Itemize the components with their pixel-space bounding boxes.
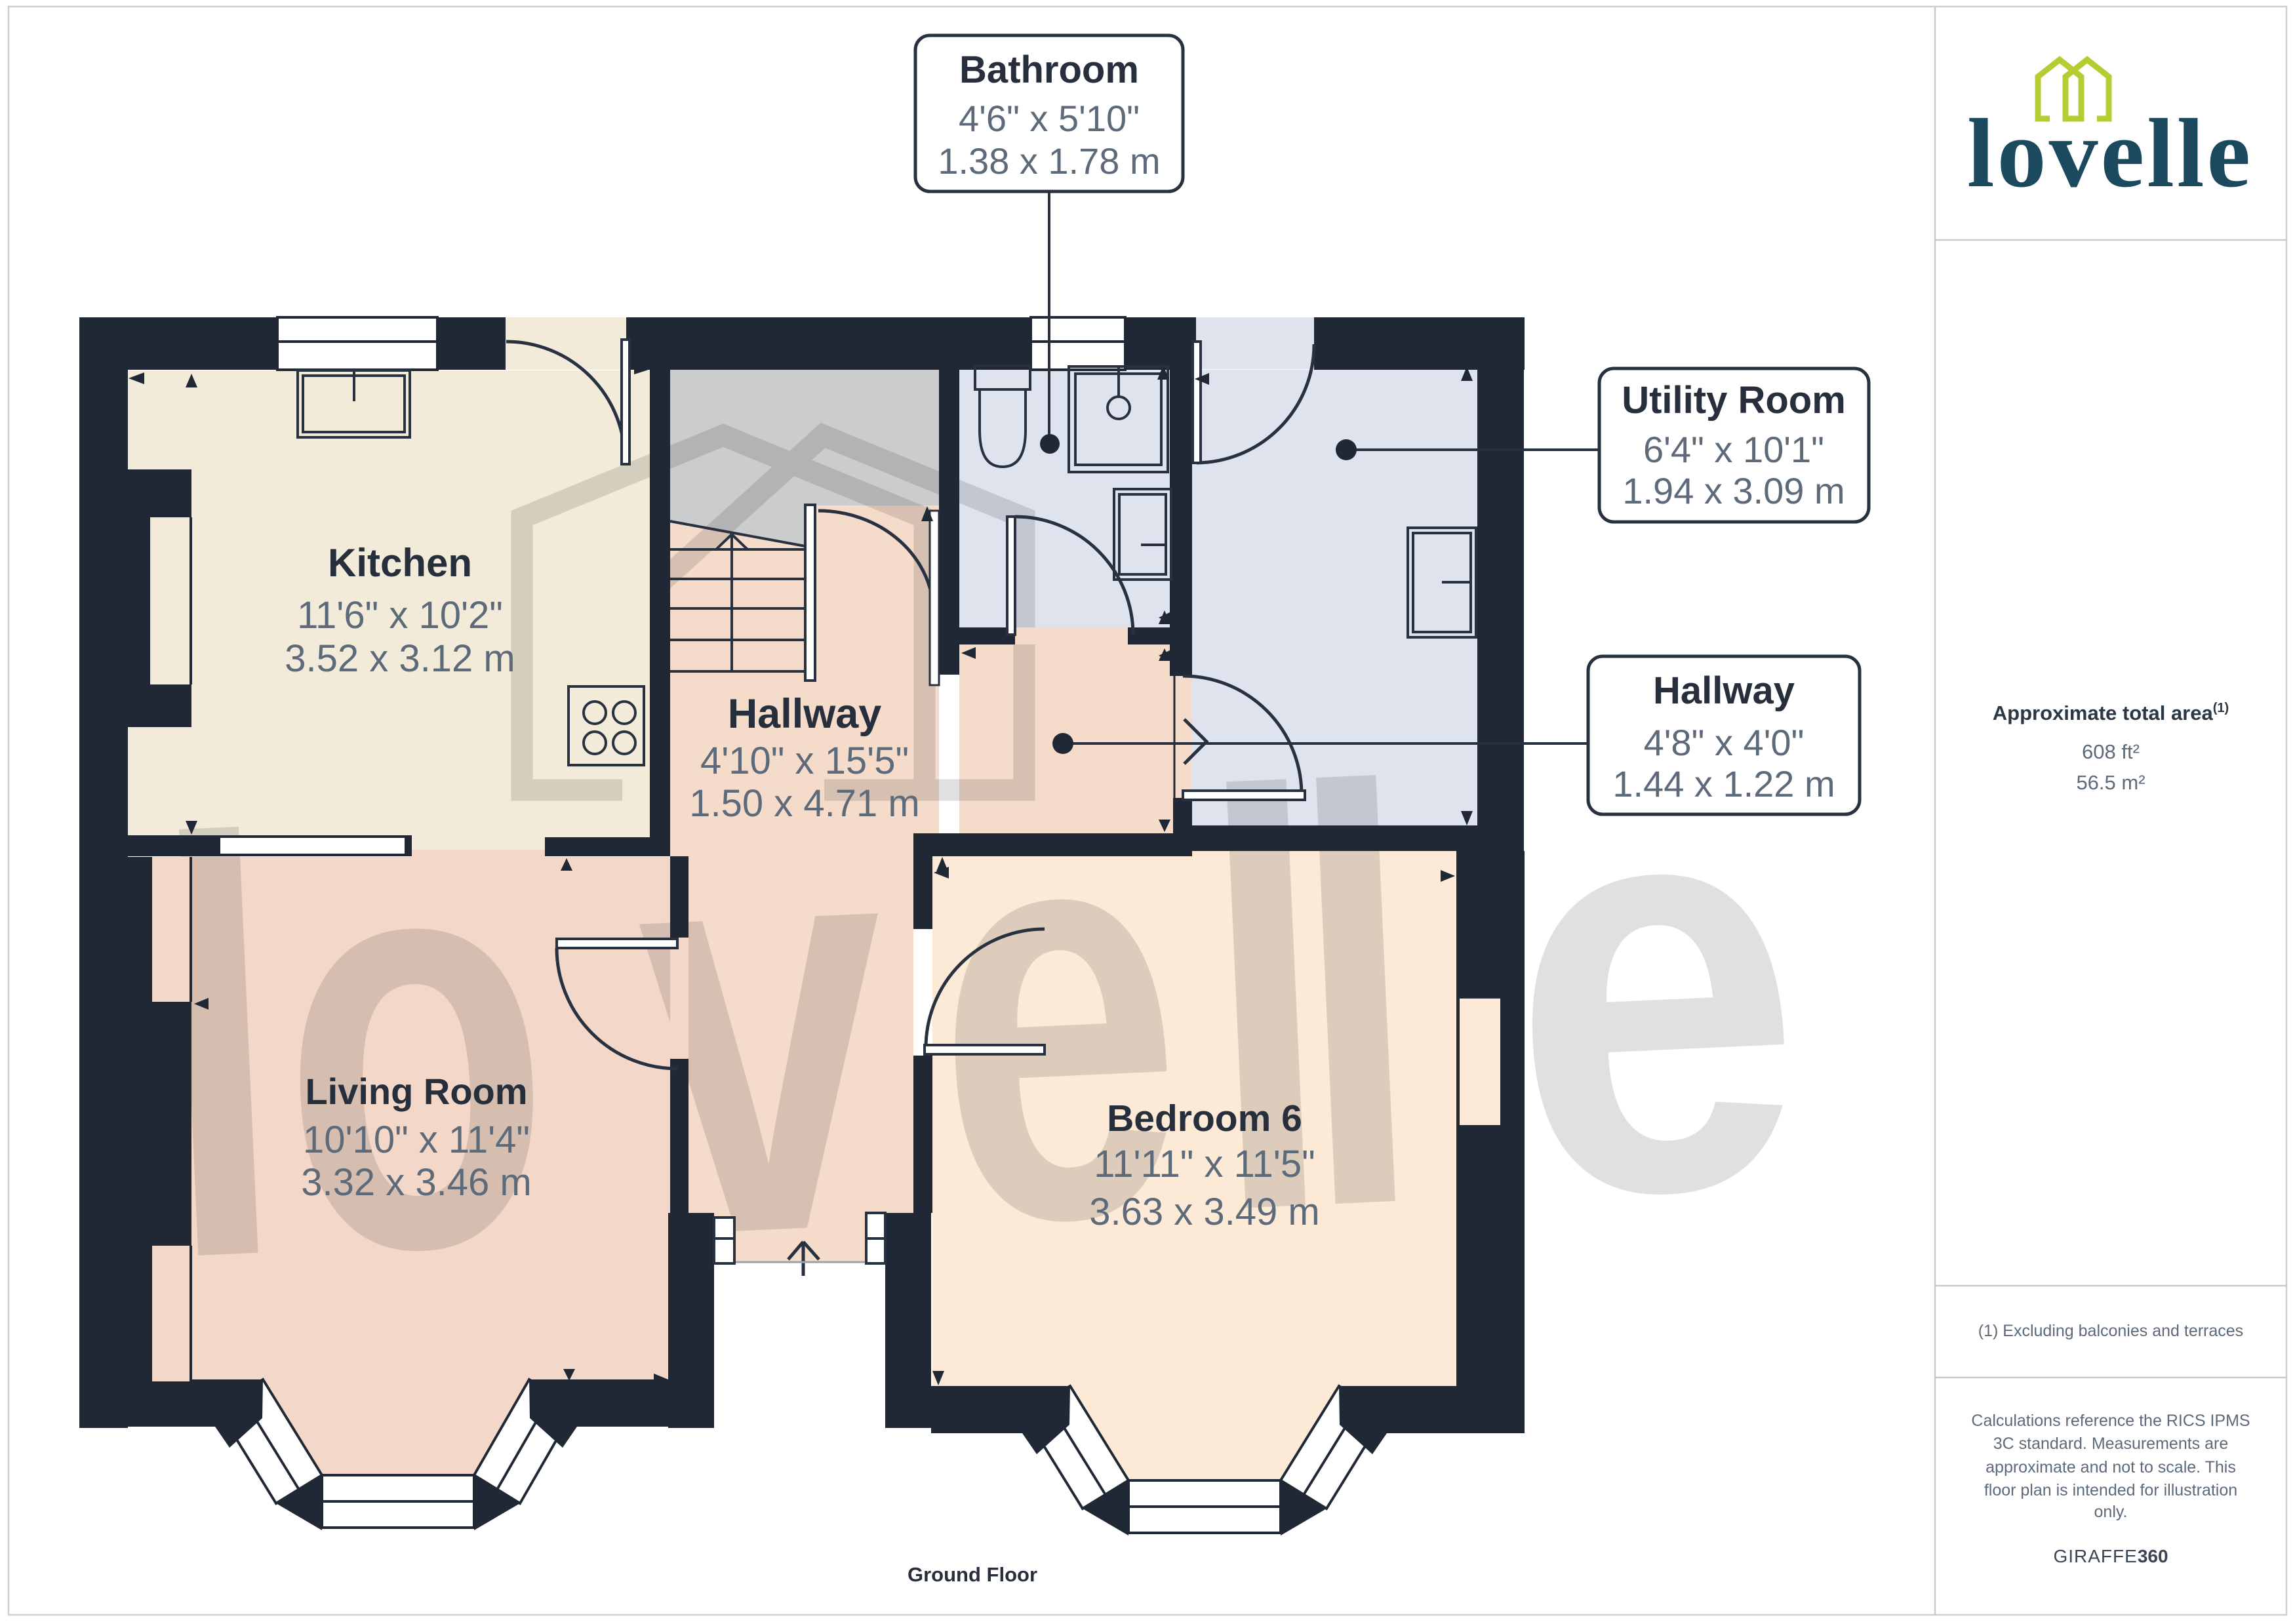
- svg-text:4'6" x 5'10": 4'6" x 5'10": [959, 98, 1140, 139]
- svg-text:4'8" x 4'0": 4'8" x 4'0": [1644, 722, 1805, 763]
- svg-text:3.52 x 3.12 m: 3.52 x 3.12 m: [285, 637, 515, 680]
- svg-text:Hallway: Hallway: [728, 691, 882, 737]
- svg-text:(1) Excluding balconies and te: (1) Excluding balconies and terraces: [1978, 1322, 2243, 1340]
- svg-text:Living Room: Living Room: [305, 1071, 527, 1112]
- svg-text:56.5 m²: 56.5 m²: [2076, 771, 2145, 794]
- svg-text:Bathroom: Bathroom: [959, 49, 1139, 91]
- svg-text:e: e: [921, 679, 1193, 1347]
- svg-text:floor plan is intended for ill: floor plan is intended for illustration: [1984, 1481, 2237, 1499]
- svg-text:Hallway: Hallway: [1653, 669, 1795, 712]
- svg-text:11'11" x 11'5": 11'11" x 11'5": [1094, 1143, 1315, 1185]
- svg-text:1.50 x 4.71 m: 1.50 x 4.71 m: [689, 782, 919, 825]
- svg-text:Bedroom 6: Bedroom 6: [1107, 1098, 1302, 1139]
- svg-text:only.: only.: [2094, 1503, 2128, 1521]
- svg-text:o: o: [266, 707, 562, 1376]
- svg-text:1.94 x 3.09 m: 1.94 x 3.09 m: [1622, 470, 1845, 511]
- svg-text:Approximate total area(1): Approximate total area(1): [1993, 701, 2229, 724]
- svg-text:3C standard. Measurements are: 3C standard. Measurements are: [1993, 1435, 2229, 1453]
- svg-text:6'4" x 10'1": 6'4" x 10'1": [1643, 429, 1824, 470]
- svg-text:Kitchen: Kitchen: [328, 541, 472, 585]
- svg-text:10'10" x 11'4": 10'10" x 11'4": [303, 1119, 530, 1161]
- svg-text:4'10" x 15'5": 4'10" x 15'5": [700, 740, 909, 782]
- svg-text:lovelle: lovelle: [1967, 99, 2253, 208]
- svg-text:1.44 x 1.22 m: 1.44 x 1.22 m: [1612, 763, 1835, 804]
- svg-text:3.63 x 3.49 m: 3.63 x 3.49 m: [1089, 1191, 1319, 1233]
- svg-text:11'6" x 10'2": 11'6" x 10'2": [297, 594, 503, 637]
- svg-text:GIRAFFE360: GIRAFFE360: [2053, 1546, 2168, 1566]
- svg-text:608 ft²: 608 ft²: [2082, 740, 2140, 763]
- svg-text:Utility Room: Utility Room: [1622, 379, 1846, 422]
- svg-text:1.38 x 1.78 m: 1.38 x 1.78 m: [938, 140, 1160, 182]
- svg-text:Calculations reference the RIC: Calculations reference the RICS IPMS: [1971, 1412, 2250, 1430]
- svg-text:3.32 x 3.46 m: 3.32 x 3.46 m: [301, 1161, 531, 1204]
- svg-text:approximate and not to scale.: approximate and not to scale. This: [1986, 1458, 2236, 1476]
- svg-text:Ground Floor: Ground Floor: [908, 1563, 1037, 1586]
